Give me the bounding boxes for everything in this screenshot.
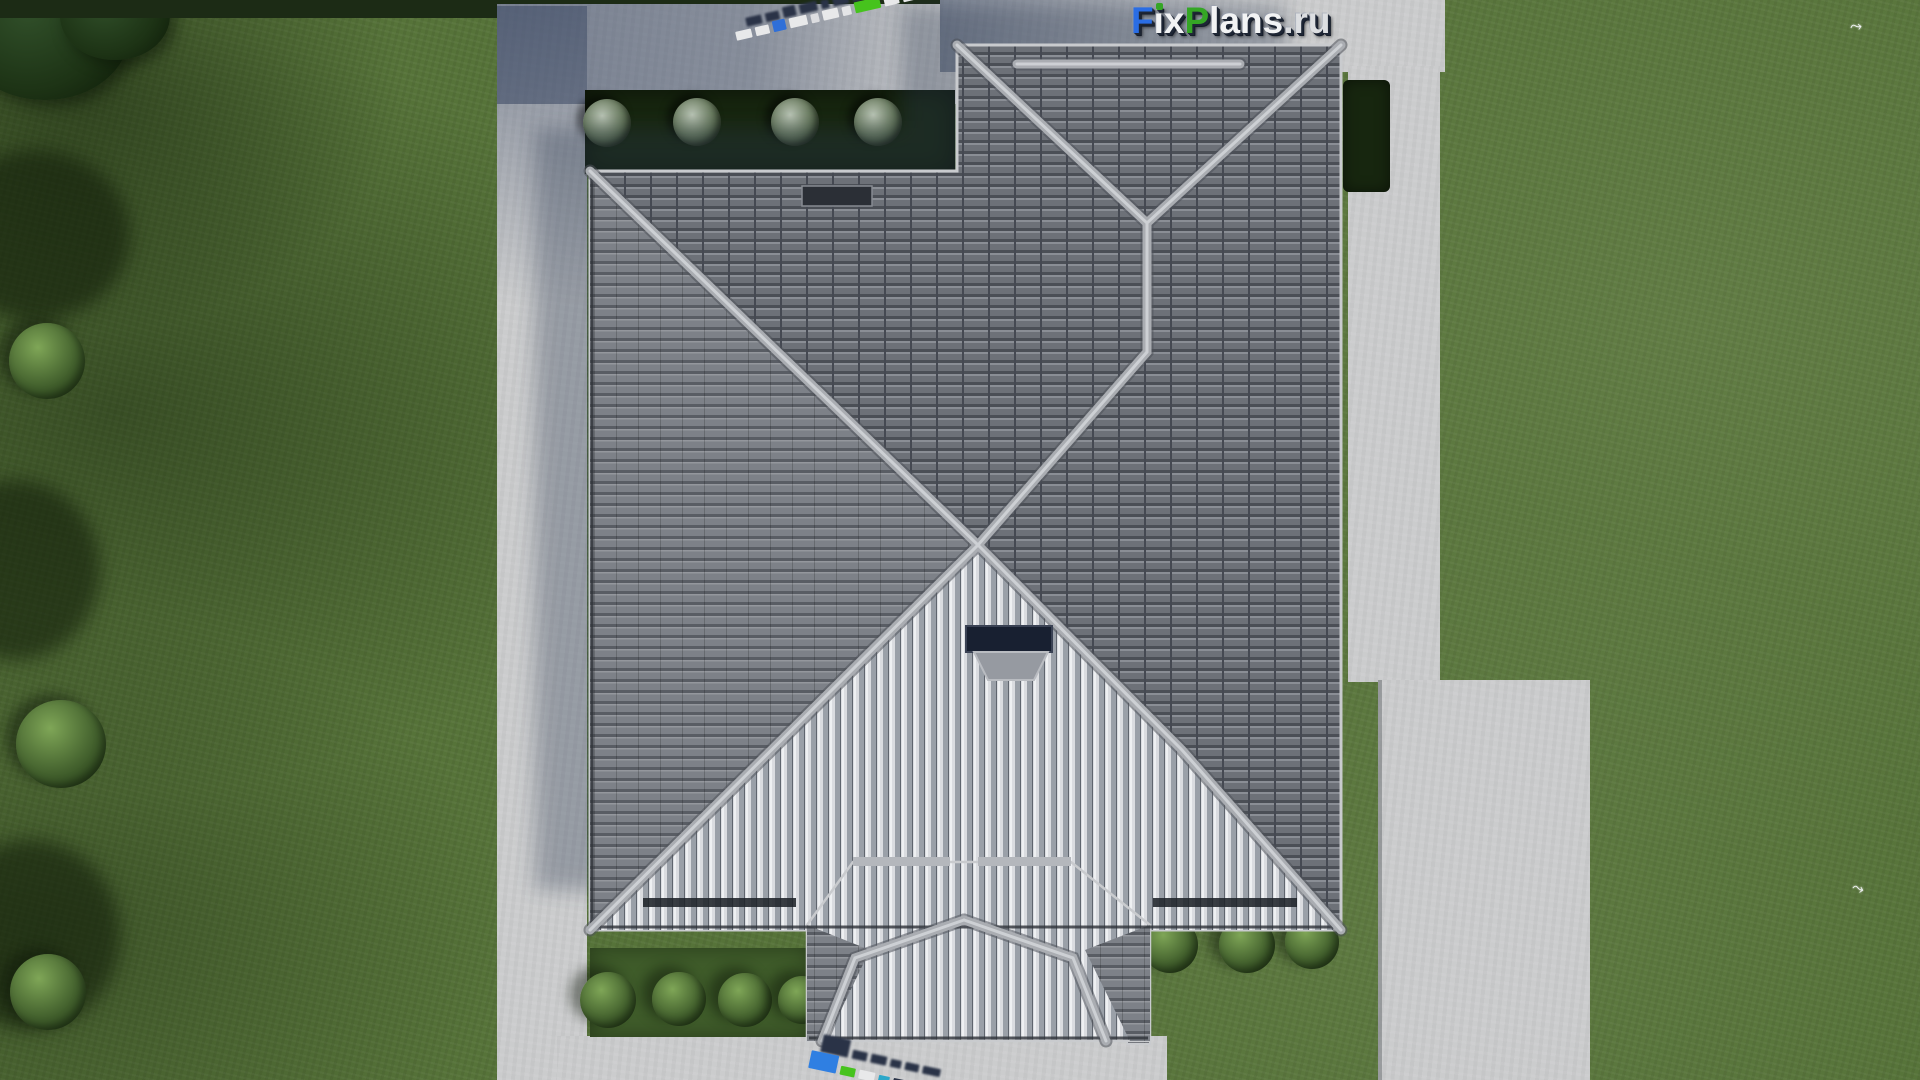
logo-letter-dot — [1156, 3, 1163, 10]
roof-vent — [802, 186, 872, 206]
watermark-block — [858, 1070, 876, 1080]
logo-letter: a — [1219, 1, 1240, 41]
logo-letter: . — [1283, 1, 1293, 41]
porch-eave-bar — [853, 857, 950, 866]
watermark-block — [878, 1075, 890, 1080]
logo-letter: l — [1209, 1, 1219, 41]
skylight-cap — [974, 652, 1048, 680]
house-roof — [0, 0, 1920, 1080]
gutter-bar — [643, 898, 796, 907]
fixplans-logo: FixPlans.ru — [1131, 1, 1331, 41]
logo-letter: r — [1293, 1, 1307, 41]
logo-letter: i — [1154, 1, 1164, 41]
porch-eave-bar — [978, 857, 1071, 866]
skylight-glass — [966, 626, 1052, 652]
logo-letter: s — [1263, 1, 1284, 41]
gutter-bar — [1153, 898, 1297, 907]
logo-letter: P — [1184, 1, 1209, 41]
logo-letter: x — [1164, 1, 1185, 41]
bird-icon: ⤳ — [1849, 17, 1863, 36]
render-canvas: FixPlans.ru ⤳ ⤳ — [0, 0, 1920, 1080]
logo-letter: n — [1240, 1, 1263, 41]
logo-letter: F — [1131, 1, 1154, 41]
logo-letter: u — [1308, 1, 1331, 41]
watermark-block — [810, 13, 820, 24]
